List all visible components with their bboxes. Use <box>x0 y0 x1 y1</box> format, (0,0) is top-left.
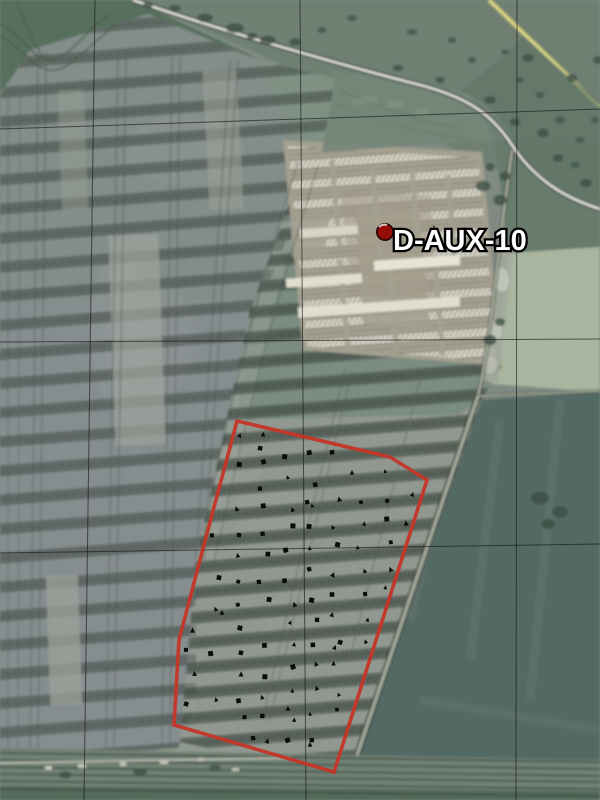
svg-text:D-AUX-10: D-AUX-10 <box>393 225 527 257</box>
